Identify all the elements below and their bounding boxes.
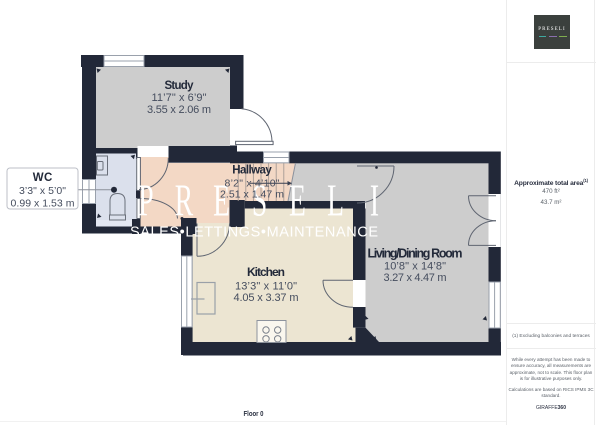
svg-text:10’8" x 14’8": 10’8" x 14’8" [384, 261, 446, 273]
svg-text:SALES•LETTINGS•MAINTENANCE: SALES•LETTINGS•MAINTENANCE [130, 225, 378, 241]
svg-text:E: E [289, 175, 306, 226]
svg-text:11’7" x 6’9": 11’7" x 6’9" [152, 92, 207, 104]
svg-text:13’3" x 11’0": 13’3" x 11’0" [235, 281, 297, 293]
svg-text:Study: Study [165, 80, 195, 92]
svg-text:4.05 x 3.37 m: 4.05 x 3.37 m [234, 292, 299, 304]
svg-text:I: I [370, 175, 379, 226]
svg-text:R: R [175, 175, 194, 226]
svg-text:3’3" x 5’0": 3’3" x 5’0" [19, 185, 66, 197]
svg-text:WC: WC [33, 172, 53, 184]
svg-text:3.27 x 4.47 m: 3.27 x 4.47 m [384, 272, 447, 284]
svg-text:2.51 x 1.47 m: 2.51 x 1.47 m [220, 189, 284, 201]
svg-text:Floor 0: Floor 0 [244, 409, 264, 418]
svg-text:8’2" x 4’10": 8’2" x 4’10" [225, 177, 280, 189]
svg-text:Living/Dining Room: Living/Dining Room [368, 247, 463, 261]
svg-text:L: L [327, 175, 344, 226]
svg-text:0.99 x 1.53 m: 0.99 x 1.53 m [11, 198, 75, 210]
svg-text:P: P [138, 175, 153, 226]
svg-text:Kitchen: Kitchen [247, 265, 285, 279]
svg-text:Hallway: Hallway [232, 165, 272, 177]
svg-text:3.55 x 2.06 m: 3.55 x 2.06 m [147, 104, 211, 116]
